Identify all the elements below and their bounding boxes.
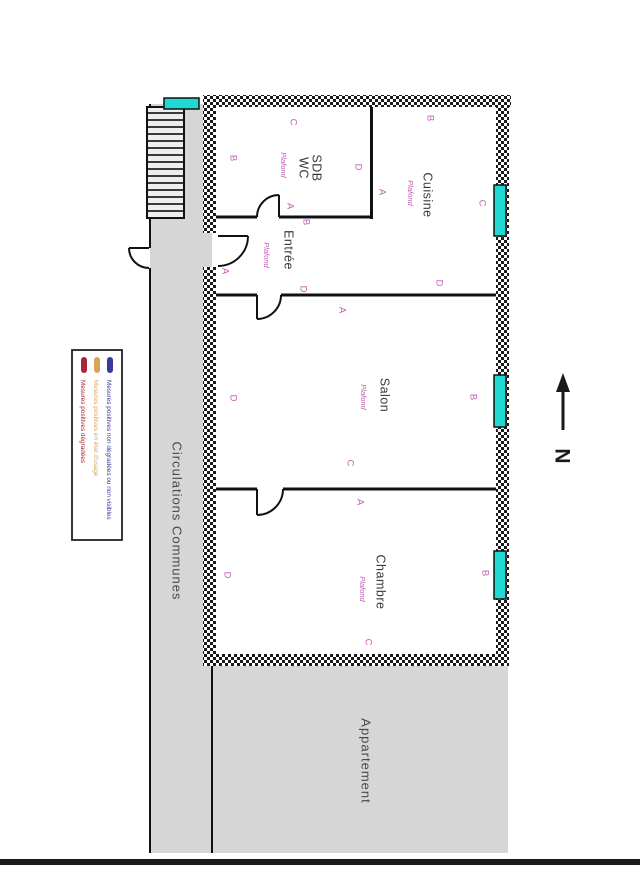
- annotation-entree: Plafond: [262, 242, 271, 268]
- room-label-cuisine: Cuisine: [421, 172, 435, 217]
- exterior-wall-bottom: [203, 654, 509, 666]
- room-label-sdb-line2: WC: [297, 157, 311, 179]
- wall-letter-salon-D: D: [227, 395, 238, 402]
- wall-letter-entree-D: D: [297, 286, 308, 293]
- wall-salon-chambre-right: [283, 488, 496, 491]
- floor-plan-page: SDB WC Plafond Cuisine Plafond Entrée Pl…: [0, 0, 640, 871]
- wall-letter-cuisine-C: C: [476, 200, 487, 207]
- page-bottom-rule: [0, 859, 640, 865]
- wall-letter-entree-A: A: [219, 268, 230, 275]
- room-label-chambre: Chambre: [374, 555, 388, 610]
- wall-letters-layer: CBDABACDBADADBCADBC: [219, 115, 490, 646]
- wall-sdb-cuisine: [370, 107, 373, 219]
- window-cuisine: [494, 185, 506, 236]
- wall-letter-chambre-D: D: [221, 572, 232, 579]
- door-corridor-to-entree: [218, 236, 248, 266]
- door-corridor-exit: [129, 248, 149, 268]
- window-stairwell: [164, 98, 199, 109]
- legend-label-usage: Mesures positives en état d'usage: [92, 380, 99, 477]
- legend-swatch-usage: [94, 357, 100, 373]
- exterior-wall-top: [203, 95, 511, 107]
- window-chambre: [494, 551, 506, 599]
- north-label: N: [550, 448, 573, 463]
- wall-letter-sdb-D: D: [352, 164, 363, 171]
- wall-letter-sdb-C: C: [287, 119, 298, 126]
- exterior-wall-left-upper: [203, 95, 216, 233]
- annotation-salon: Plafond: [359, 384, 368, 410]
- wall-letter-salon-C: C: [344, 460, 355, 467]
- door-entree-to-sdb: [257, 195, 279, 217]
- wall-letter-sdb-B: B: [227, 155, 238, 161]
- wall-letter-entree-B: B: [300, 219, 311, 225]
- wall-letter-cuisine-B: B: [424, 115, 435, 121]
- wall-letter-salon-A: A: [336, 307, 347, 314]
- room-label-entree: Entrée: [282, 230, 296, 270]
- door-entree-to-salon: [257, 295, 281, 319]
- apartment-left-wall-lower: [211, 666, 213, 853]
- annotation-cuisine: Plafond: [406, 180, 415, 206]
- door-salon-to-chambre: [257, 489, 283, 515]
- wall-entree-salon-left: [216, 294, 257, 297]
- legend-swatch-degraded: [81, 357, 87, 373]
- legend-swatch-nondegraded: [107, 357, 113, 373]
- annotation-sdb: Plafond: [279, 152, 288, 178]
- area-label-corridor: Circulations Communes: [170, 442, 185, 601]
- wall-letter-cuisine-D: D: [433, 280, 444, 287]
- legend-label-degraded: Mesures positives dégradées: [79, 380, 86, 463]
- wall-entree-salon-right: [281, 294, 496, 297]
- wall-letter-chambre-A: A: [354, 499, 365, 506]
- wall-letter-chambre-C: C: [362, 639, 373, 646]
- room-label-sdb-line1: SDB: [310, 154, 324, 181]
- corridor-left-wall-lower: [149, 268, 151, 853]
- room-label-salon: Salon: [378, 378, 392, 412]
- north-arrow-head: [556, 373, 570, 392]
- wall-letter-sdb-A: A: [284, 203, 295, 210]
- north-indicator: N: [550, 373, 573, 464]
- staircase: [147, 107, 184, 218]
- wall-salon-chambre-left: [216, 488, 257, 491]
- window-salon: [494, 375, 506, 427]
- legend: Mesures positives dégradées Mesures posi…: [72, 350, 122, 540]
- wall-sdb-entree-right: [279, 216, 373, 219]
- area-label-apartment: Appartement: [359, 718, 374, 803]
- legend-label-nondegraded: Mesures positives non dégradées ou non v…: [105, 380, 112, 520]
- wall-letter-salon-B: B: [467, 394, 478, 400]
- wall-letter-cuisine-A: A: [376, 189, 387, 196]
- annotation-chambre: Plafond: [358, 576, 367, 602]
- exterior-wall-left-lower: [203, 267, 216, 666]
- floor-plan-svg: SDB WC Plafond Cuisine Plafond Entrée Pl…: [0, 0, 640, 871]
- wall-sdb-entree-left: [216, 216, 257, 219]
- wall-letter-chambre-B: B: [479, 570, 490, 576]
